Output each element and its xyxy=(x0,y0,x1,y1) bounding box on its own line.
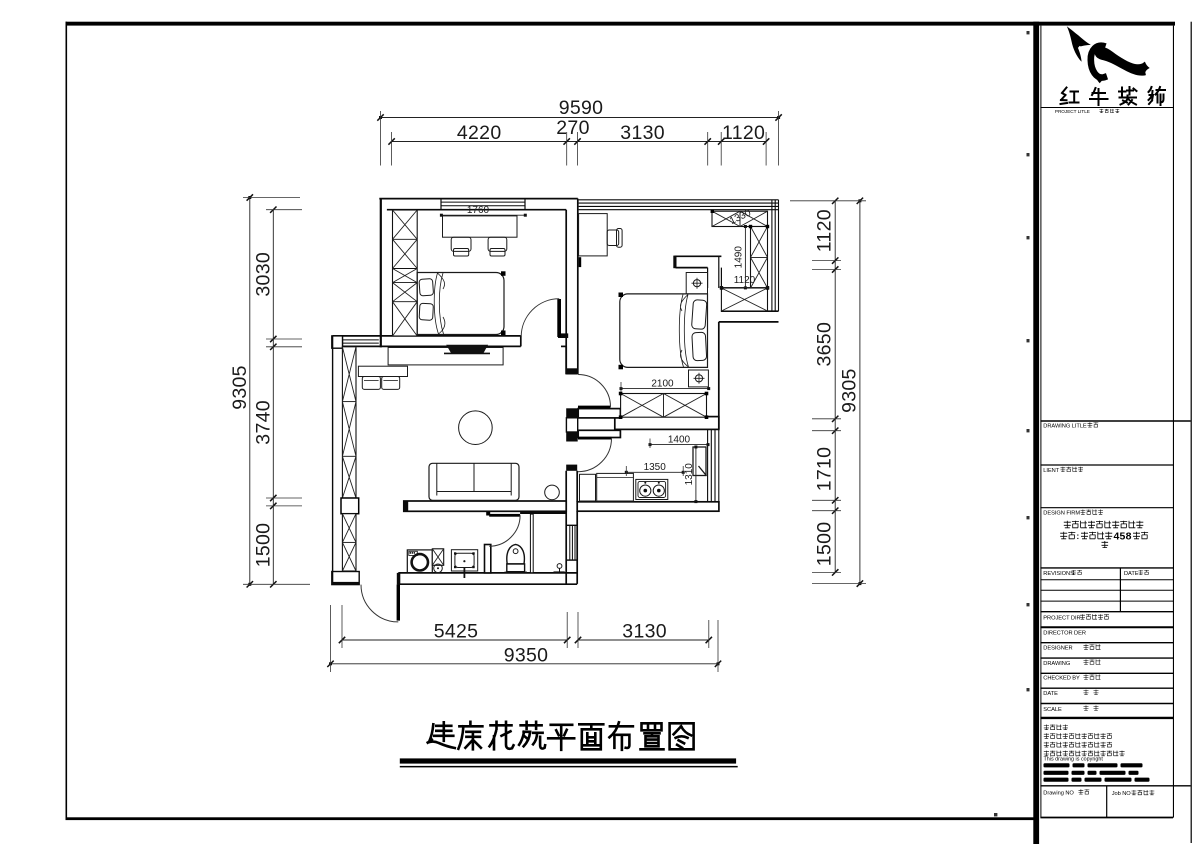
svg-text:REVISIONS: REVISIONS xyxy=(1043,571,1074,577)
svg-text:DESIGN FIRM: DESIGN FIRM xyxy=(1043,511,1080,517)
svg-text:3130: 3130 xyxy=(622,621,667,643)
svg-text:9350: 9350 xyxy=(504,645,549,667)
svg-text:9305: 9305 xyxy=(838,368,860,413)
svg-text:270: 270 xyxy=(556,117,589,139)
svg-text:3740: 3740 xyxy=(253,400,275,445)
svg-text:1500: 1500 xyxy=(253,523,275,568)
svg-text:458: 458 xyxy=(1114,531,1132,543)
svg-text:PROJECT LITLE: PROJECT LITLE xyxy=(1055,109,1090,114)
svg-text:DATE: DATE xyxy=(1124,571,1139,577)
svg-text:1120: 1120 xyxy=(734,275,756,286)
svg-text:PROJECT DIR: PROJECT DIR xyxy=(1043,616,1080,622)
svg-text::: : xyxy=(1077,532,1080,541)
svg-text:1760: 1760 xyxy=(467,205,490,216)
svg-text:5425: 5425 xyxy=(434,621,479,643)
svg-text:1120: 1120 xyxy=(814,209,836,252)
svg-text:DIRECTOR DER: DIRECTOR DER xyxy=(1043,631,1086,637)
svg-text:2100: 2100 xyxy=(651,378,674,389)
svg-text:CHECKED BY: CHECKED BY xyxy=(1043,676,1080,682)
svg-text:DESIGNER: DESIGNER xyxy=(1043,646,1072,652)
svg-text:3130: 3130 xyxy=(620,122,665,144)
svg-text:1490: 1490 xyxy=(734,246,745,269)
svg-text:9590: 9590 xyxy=(559,97,604,119)
svg-text:DRAWING LITLE: DRAWING LITLE xyxy=(1043,423,1087,429)
svg-text:Job NO: Job NO xyxy=(1112,791,1132,797)
svg-text:9305: 9305 xyxy=(229,365,251,410)
svg-text:4220: 4220 xyxy=(457,122,502,144)
svg-text:1400: 1400 xyxy=(668,434,691,445)
svg-text:SCALE: SCALE xyxy=(1043,707,1062,713)
svg-text:DRAWING: DRAWING xyxy=(1043,661,1070,667)
svg-text:Drawing NO: Drawing NO xyxy=(1043,790,1074,796)
svg-text:1500: 1500 xyxy=(814,522,836,567)
svg-text:1710: 1710 xyxy=(814,447,836,492)
svg-text:DATE: DATE xyxy=(1043,691,1058,697)
svg-text:3030: 3030 xyxy=(253,252,275,297)
svg-text:3650: 3650 xyxy=(814,322,836,367)
svg-text:LIENT: LIENT xyxy=(1043,468,1059,474)
svg-text:1350: 1350 xyxy=(644,462,667,473)
svg-text:1120: 1120 xyxy=(722,122,765,144)
svg-text:1310: 1310 xyxy=(684,463,695,486)
svg-text:This drawing is copyright: This drawing is copyright xyxy=(1044,757,1104,763)
